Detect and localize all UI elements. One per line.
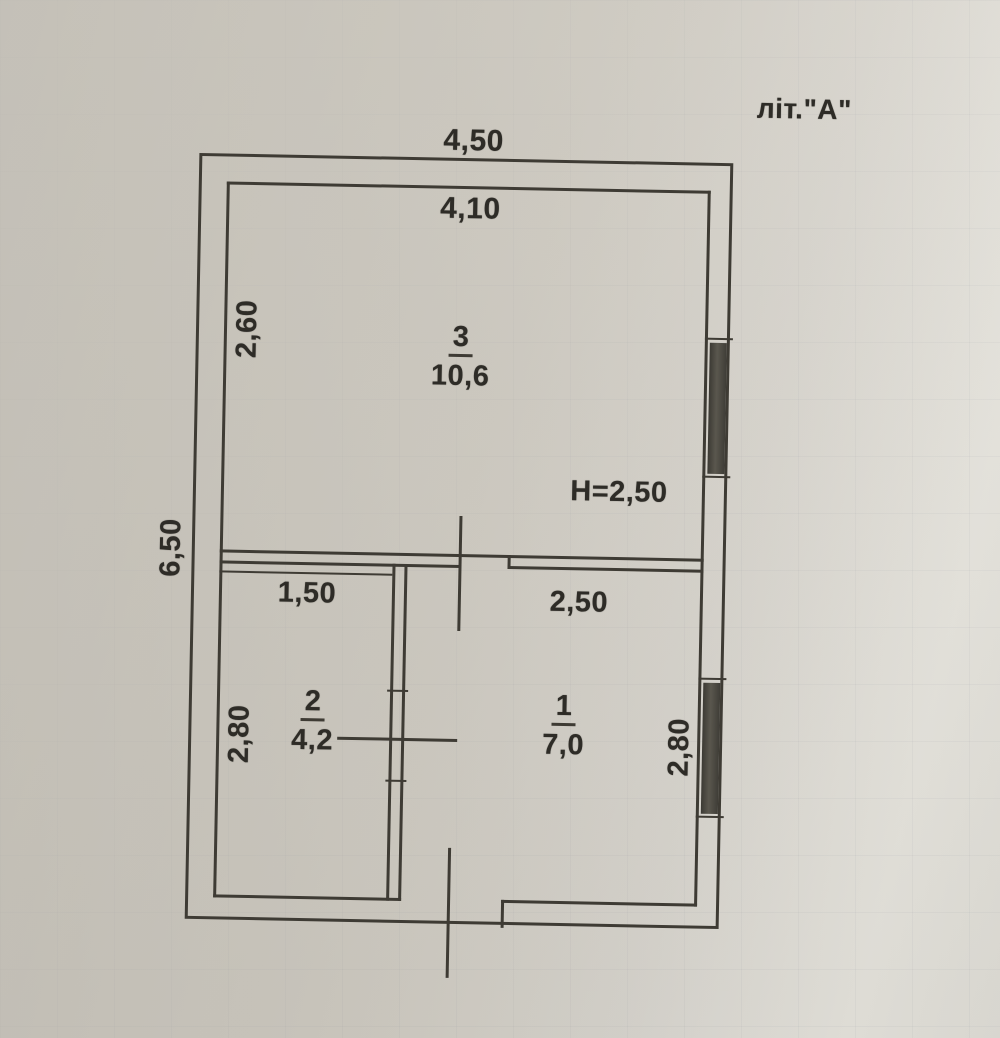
room-label-2: 2 4,2 [262,686,363,758]
inner-wall-bottom-right [501,900,697,907]
middle-wall-bottom-right [507,566,703,573]
middle-wall-face-left [219,570,392,575]
partition-wall-right [398,564,407,901]
room-number-3: 3 [448,323,473,357]
middle-wall-bottom-left [220,560,461,568]
dim-inner-width: 4,10 [395,192,546,226]
partition-door-tick-bottom [385,780,406,782]
window-upper-tick-top [705,338,733,341]
dim-room2-width: 1,50 [232,577,383,610]
entrance-door-jamb [501,900,505,928]
window-lower [701,683,721,814]
room-area-3: 10,6 [410,359,511,394]
floor-plan: літ."А" 4,50 4,10 2,60 6,50 H=2,50 1,50 … [185,153,734,929]
door-opening-marker-room3 [457,516,462,631]
dim-room1-width: 2,50 [504,586,655,619]
dim-outer-height: 6,50 [154,497,188,598]
ceiling-height-label: H=2,50 [539,476,700,510]
window-upper-tick-bottom [702,476,730,479]
floor-plan-photo: літ."А" 4,50 4,10 2,60 6,50 H=2,50 1,50 … [0,0,1000,1038]
dim-room3-height: 2,60 [230,279,264,380]
partition-door-tick-top [387,690,408,692]
room-label-3: 3 10,6 [410,322,511,394]
window-lower-tick-bottom [696,816,724,819]
building-letter: літ."А" [729,93,880,125]
room-number-1: 1 [551,692,576,726]
inner-wall-left [213,181,230,897]
room-area-2: 4,2 [262,723,363,758]
dim-outer-width: 4,50 [398,124,549,158]
inner-wall-bottom-left [213,894,401,901]
room-area-1: 7,0 [513,728,614,763]
middle-wall-door-jamb [507,555,510,569]
dim-room2-height: 2,80 [222,684,256,785]
window-upper [707,343,727,474]
partition-wall-left [386,564,395,901]
room-number-2: 2 [300,687,325,721]
window-lower-tick-top [698,678,726,681]
room-label-1: 1 7,0 [513,691,614,763]
dim-room1-height: 2,80 [662,697,696,798]
